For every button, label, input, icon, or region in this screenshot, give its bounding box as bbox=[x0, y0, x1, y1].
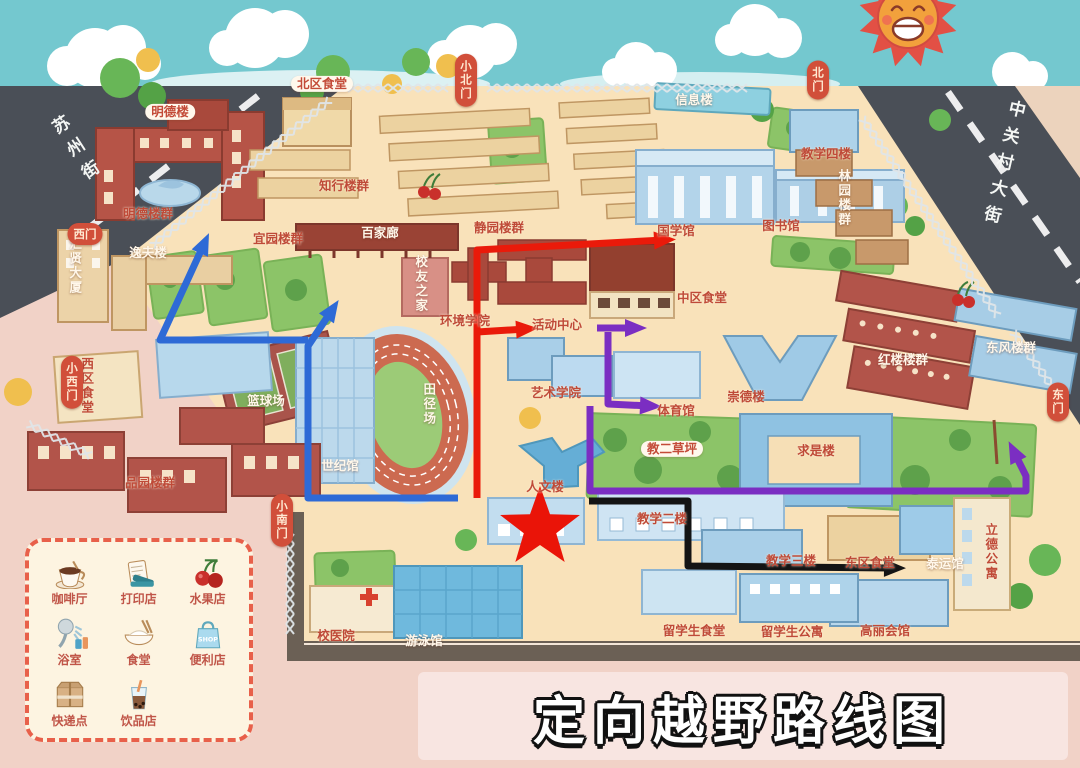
title-plaque: 定向越野路线图 bbox=[418, 672, 1068, 760]
legend-box: 咖啡厅打印店水果店浴室食堂SHOP便利店快递点饮品店 bbox=[25, 538, 253, 742]
legend-item-cherries: 水果店 bbox=[173, 557, 242, 607]
legend-item-label: 食堂 bbox=[127, 651, 151, 668]
shop-bag-icon: SHOP bbox=[190, 618, 226, 650]
parcel-box-icon bbox=[52, 679, 88, 711]
legend-item-rice-bowl: 食堂 bbox=[104, 618, 173, 668]
legend-item-label: 打印店 bbox=[121, 590, 157, 607]
legend-item-label: 咖啡厅 bbox=[52, 590, 88, 607]
legend-item-shower: 浴室 bbox=[35, 618, 104, 668]
legend-item-parcel-box: 快递点 bbox=[35, 679, 104, 729]
legend-item-coffee-cup: 咖啡厅 bbox=[35, 557, 104, 607]
cherries-icon bbox=[190, 557, 226, 589]
svg-text:SHOP: SHOP bbox=[198, 636, 218, 643]
coffee-cup-icon bbox=[52, 557, 88, 589]
legend-item-bubble-tea: 饮品店 bbox=[104, 679, 173, 729]
legend-item-shop-bag: SHOP便利店 bbox=[173, 618, 242, 668]
legend-item-label: 便利店 bbox=[190, 651, 226, 668]
printer-icon bbox=[121, 557, 157, 589]
campus-orienteering-map: 明德楼明德楼群北区食堂知行楼群宜园楼群静园楼群百家廊信息楼国学馆图书馆教学四楼林… bbox=[0, 0, 1080, 768]
legend-item-label: 浴室 bbox=[58, 651, 82, 668]
bubble-tea-icon bbox=[121, 679, 157, 711]
shower-icon bbox=[52, 618, 88, 650]
legend-item-printer: 打印店 bbox=[104, 557, 173, 607]
legend-item-label: 水果店 bbox=[190, 590, 226, 607]
rice-bowl-icon bbox=[121, 618, 157, 650]
map-title: 定向越野路线图 bbox=[533, 679, 953, 754]
legend-item-label: 快递点 bbox=[52, 712, 88, 729]
legend-item-label: 饮品店 bbox=[121, 712, 157, 729]
